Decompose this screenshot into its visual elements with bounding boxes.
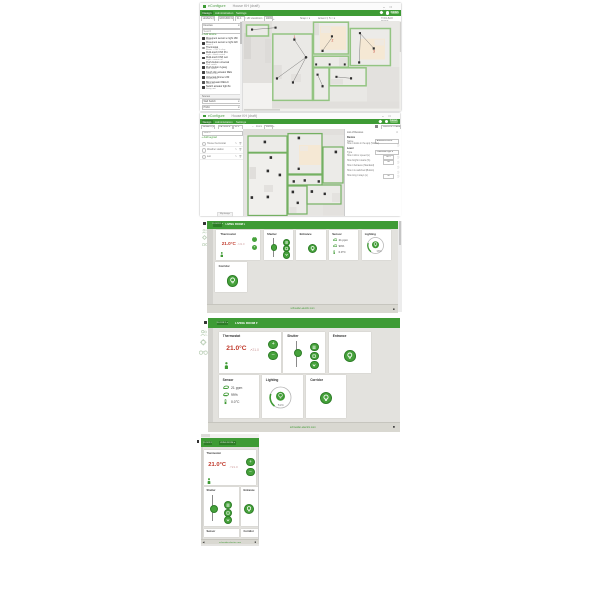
svg-text:1: 1 — [293, 35, 295, 39]
svg-text:38%: 38% — [377, 249, 383, 253]
svg-text:3: 3 — [373, 49, 375, 53]
svg-text:2: 2 — [331, 38, 333, 42]
svg-text:51%: 51% — [278, 403, 284, 407]
